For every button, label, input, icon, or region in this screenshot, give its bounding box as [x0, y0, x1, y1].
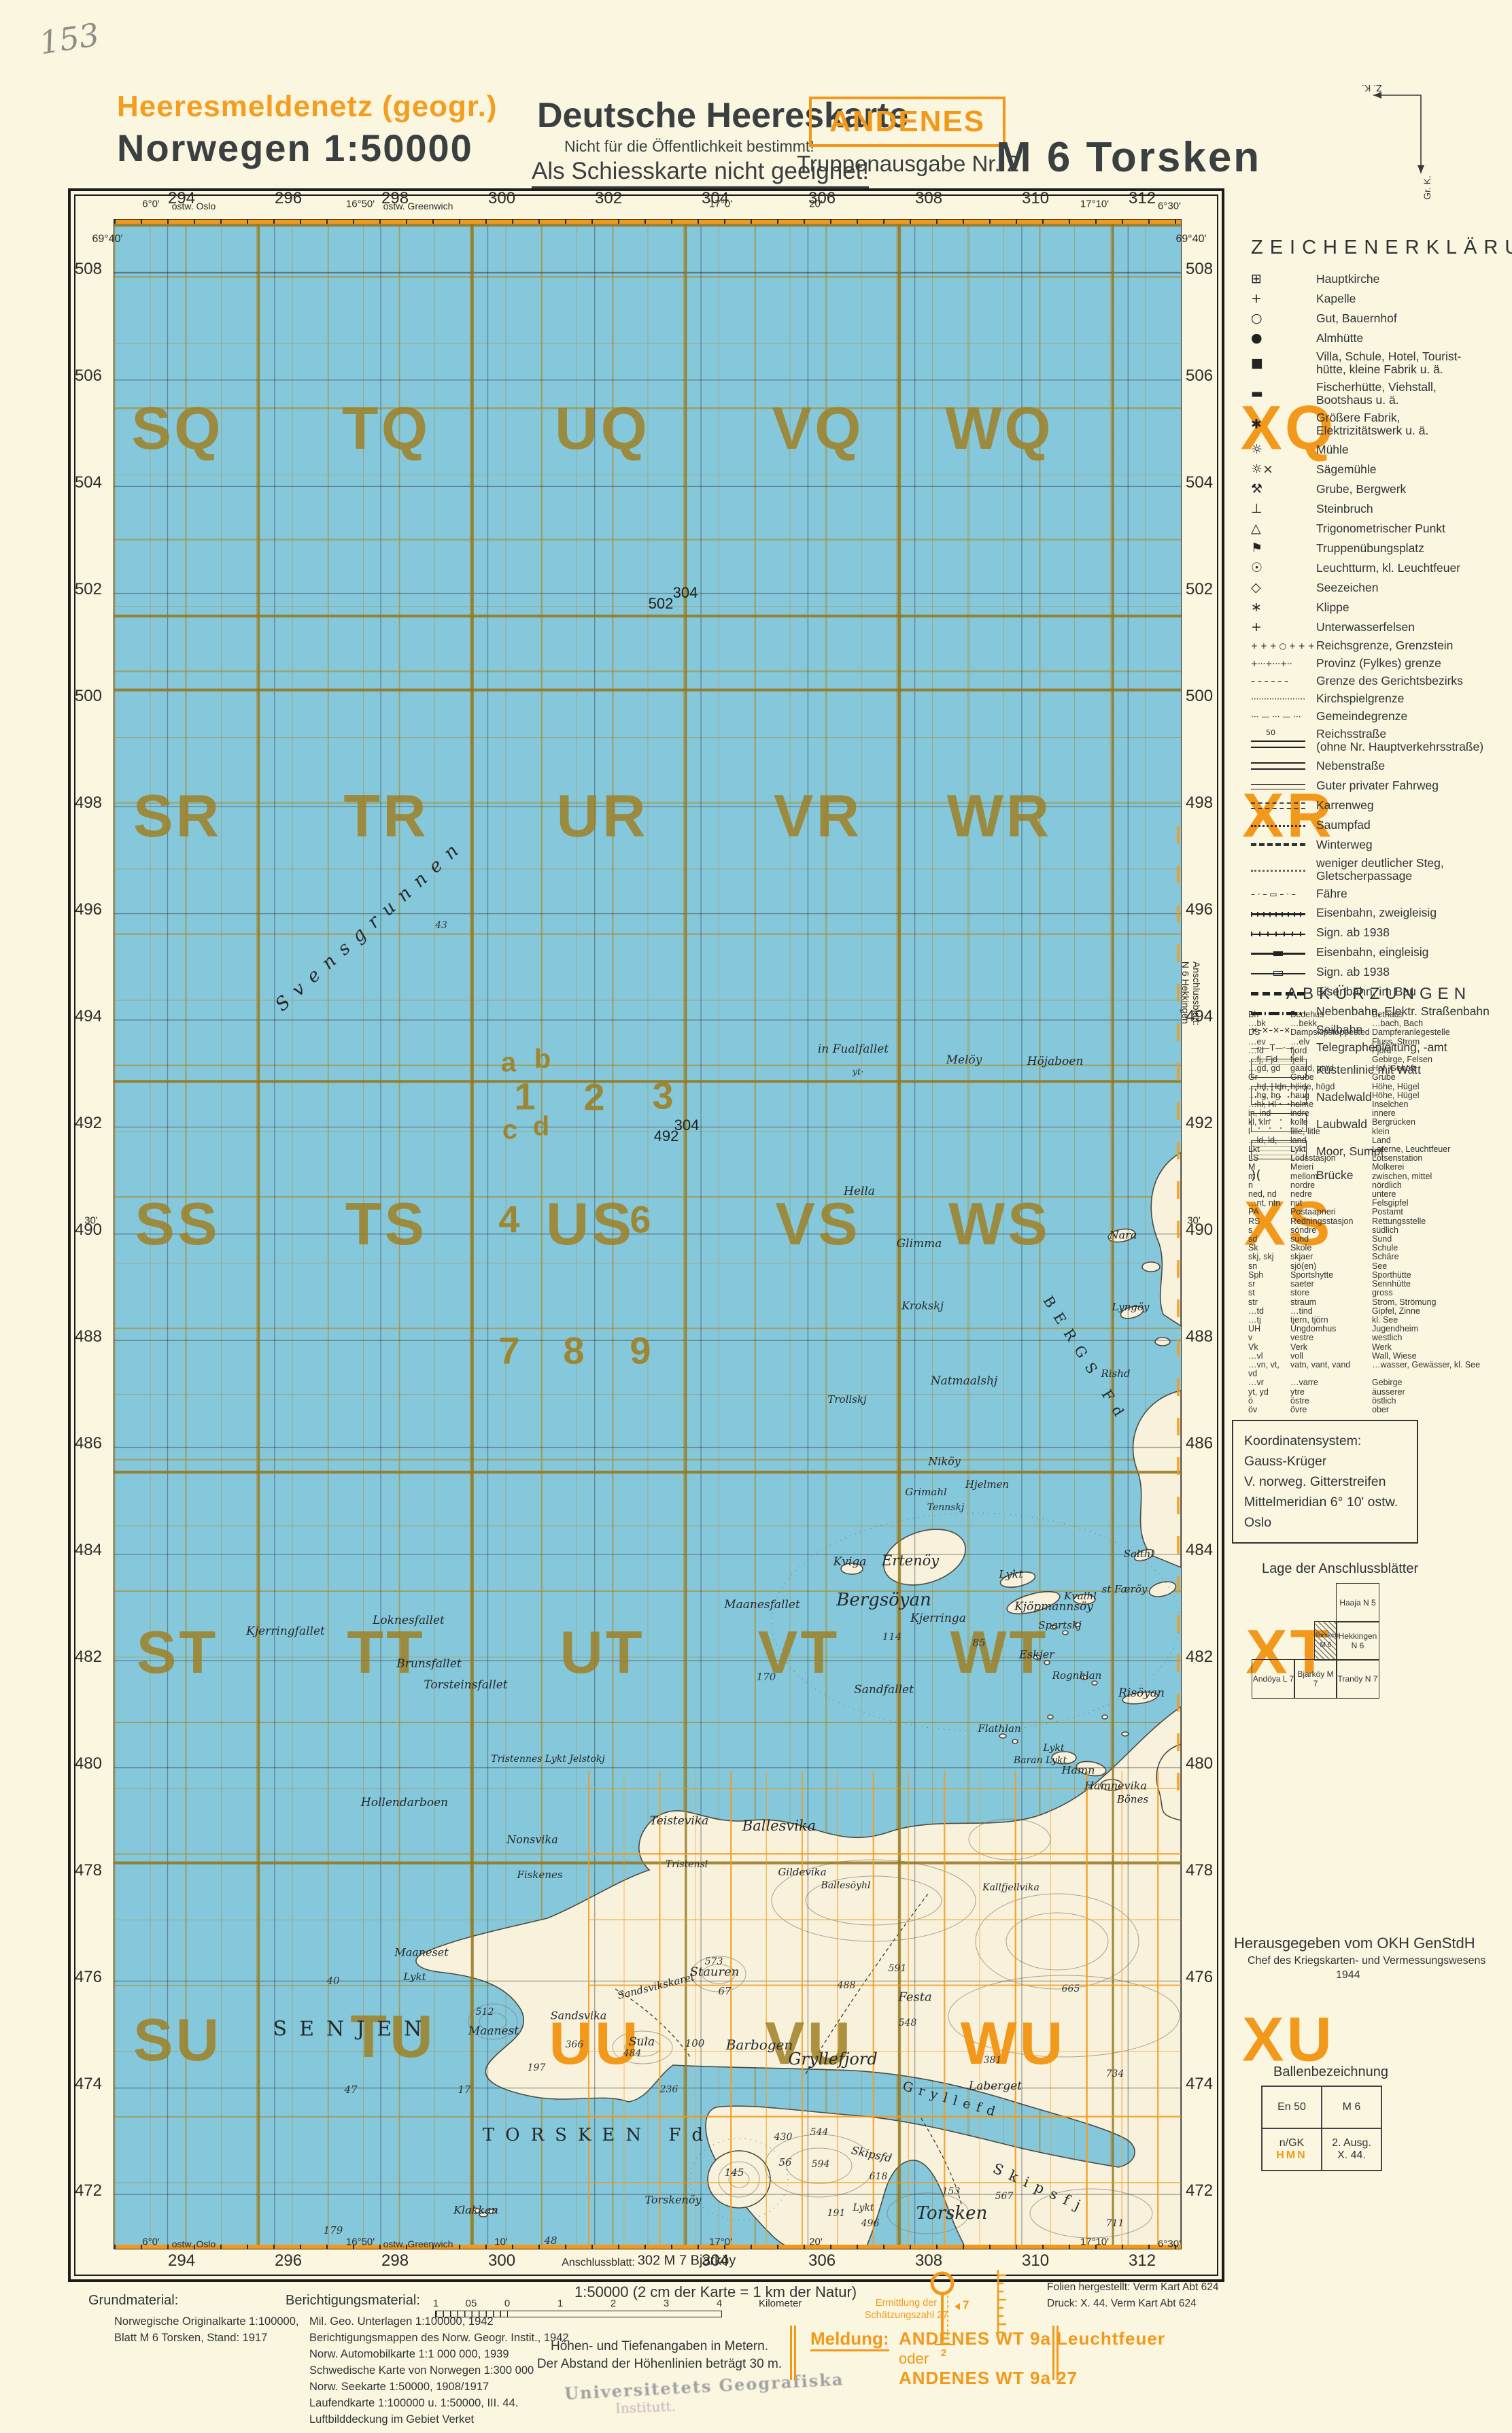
abbreviation-cell: vestre — [1290, 1333, 1372, 1342]
abbreviation-cell: Gebirge — [1372, 1378, 1510, 1387]
abbreviation-cell: Dampferanlegestelle — [1372, 1028, 1510, 1037]
abbreviation-cell: v — [1248, 1333, 1290, 1342]
abbreviation-cell: Höhe, Hügel — [1372, 1083, 1510, 1091]
abbreviation-cell: yt, yd — [1248, 1388, 1290, 1397]
legend-item-label: weniger deutlicher Steg,Gletscherpassage — [1316, 857, 1444, 883]
scale-bar: 10501234 Kilometer — [435, 2311, 722, 2317]
scale-bar-number: 0 — [504, 2298, 510, 2309]
legend-symbol-icon: △ — [1251, 521, 1316, 536]
abbreviation-cell: kl, kln — [1248, 1118, 1290, 1127]
abbreviation-cell: st — [1248, 1289, 1290, 1297]
abbreviation-cell: RS — [1248, 1217, 1290, 1226]
scale-bar-number: 3 — [664, 2298, 669, 2309]
north-arrow-icon — [1350, 82, 1458, 204]
adjoin-cell-hekkingen: Hekkingen N 6 — [1336, 1621, 1379, 1661]
legend-item-label: Reichsstraße(ohne Nr. Hauptverkehrsstraß… — [1316, 728, 1483, 753]
legend-item: +···+···+··Provinz (Fylkes) grenze — [1251, 657, 1509, 670]
publisher-line1: Herausgegeben vom OKH GenStdH — [1234, 1935, 1506, 1952]
abbreviation-cell: kolle — [1290, 1118, 1372, 1127]
legend-item-label: Winterweg — [1316, 838, 1373, 851]
legend-item: ○Gut, Bauernhof — [1251, 311, 1509, 326]
abbreviation-cell: sn — [1248, 1262, 1290, 1271]
legend-symbol-icon: ◇ — [1251, 580, 1316, 595]
abbreviation-cell: nedre — [1290, 1190, 1372, 1199]
legend-item: ▬Fischerhütte, Viehstall,Bootshaus u. ä. — [1251, 381, 1509, 407]
scale-bar-unit: Kilometer — [759, 2298, 802, 2309]
bale-table: En 50 M 6 n/GKHMN 2. Ausg.X. 44. — [1261, 2086, 1382, 2171]
abbreviation-row: …ev…elvFluss, Strom — [1248, 1038, 1510, 1047]
legend-item-label: Fischerhütte, Viehstall,Bootshaus u. ä. — [1316, 381, 1437, 407]
legend-item-label: Seezeichen — [1316, 581, 1378, 594]
library-stamp-line2: Institutt. — [615, 2398, 676, 2416]
legend-item-label: Almhütte — [1316, 332, 1363, 345]
scale-statement: 1:50000 (2 cm der Karte = 1 km der Natur… — [574, 2283, 857, 2301]
abbreviation-cell: skjaer — [1290, 1253, 1372, 1261]
folien-line: Folien hergestellt: Verm Kart Abt 624 — [1047, 2279, 1218, 2295]
legend-symbol-note: 50 — [1266, 730, 1316, 736]
map-frame: Anschlussblatt: N 6 Hekkingen — [68, 188, 1224, 2282]
scale-bar-number: 1 — [433, 2298, 439, 2309]
legend-item-label: Kapelle — [1316, 292, 1356, 305]
legend-symbol-icon: ☼ — [1251, 442, 1316, 457]
legend-line-symbol — [1251, 912, 1305, 917]
legend-symbol-icon — [1251, 925, 1316, 940]
bale-cell-en50: En 50 — [1262, 2086, 1322, 2128]
legend-symbol-icon: ☼× — [1251, 462, 1316, 477]
abbreviation-cell: voll — [1290, 1352, 1372, 1361]
abbreviation-cell: PA — [1248, 1208, 1290, 1216]
abbreviation-cell: Strom, Strömung — [1372, 1298, 1510, 1307]
legend-item: ⊞Hauptkirche — [1251, 271, 1509, 286]
schaetzungszahl-icon — [923, 2268, 1025, 2364]
legend-item-label: Trigonometrischer Punkt — [1316, 522, 1445, 535]
legend-item-label: Grube, Bergwerk — [1316, 483, 1406, 496]
legend-item: – · – ▭ – · –Fähre — [1251, 887, 1509, 900]
legend-symbol-icon: ▬ — [1251, 386, 1316, 401]
abbreviation-cell: …tind — [1290, 1307, 1372, 1316]
legend-item-label: Hauptkirche — [1316, 273, 1379, 286]
legend-line-symbol — [1251, 932, 1305, 936]
legend-item: ■Villa, Schule, Hotel, Tourist-hütte, kl… — [1251, 350, 1509, 376]
abbreviation-cell: Gipfel, Zinne — [1372, 1307, 1510, 1316]
abbreviation-cell: Gr — [1248, 1073, 1290, 1082]
abbreviation-cell: UH — [1248, 1325, 1290, 1333]
publisher-line2: Chef des Kriegskarten- und Vermessungswe… — [1248, 1955, 1506, 1967]
coord-line-1: Koordinatensystem: Gauss-Krüger — [1244, 1431, 1406, 1471]
berichtigung-line: Laufendkarte 1:100000 u. 1:50000, III. 4… — [309, 2395, 569, 2411]
abbreviation-row: VkVerkWerk — [1248, 1343, 1510, 1352]
abbreviation-row: …vn, vt, vdvatn, vant, vand…wasser, Gewä… — [1248, 1361, 1510, 1378]
abbreviation-cell: Postamt — [1372, 1208, 1510, 1216]
abbreviation-cell: zwischen, mittel — [1372, 1172, 1510, 1181]
abbreviation-cell: sjö(en) — [1290, 1262, 1372, 1271]
meldenetz-edge-dashes — [1177, 818, 1180, 1790]
andenes-stamp: ANDENES — [809, 97, 1006, 147]
abbreviation-cell: ober — [1372, 1406, 1510, 1414]
schaetzungszahl-diagram: 7 2 — [923, 2268, 1025, 2364]
abbreviation-cell: öv — [1248, 1406, 1290, 1414]
meldung-oder: oder — [899, 2350, 929, 2368]
abbreviation-cell: Werk — [1372, 1343, 1510, 1352]
coordinate-system-box: Koordinatensystem: Gauss-Krüger V. norwe… — [1232, 1420, 1418, 1544]
meldung-line1: ANDENES WT 9a Leuchtfeuer — [899, 2328, 1165, 2349]
map-sheet-page: { "page":{"pencil_note":"153"}, "header"… — [0, 0, 1512, 2433]
legend-symbol-icon: – · – ▭ – · – — [1251, 889, 1316, 899]
bale-hmn: HMN — [1263, 2149, 1320, 2162]
abbreviation-cell: …ev — [1248, 1038, 1290, 1047]
legend-item: ◇Seezeichen — [1251, 580, 1509, 595]
legend-item: ·····················Kirchspielgrenze — [1251, 692, 1509, 705]
legend-item-label: Sign. ab 1938 — [1316, 966, 1390, 979]
abbreviations-rows: BhBedehusBethaus…bk…bekk…bach, BachDSDam… — [1248, 1010, 1510, 1414]
legend-item-label: Klippe — [1316, 601, 1350, 614]
sheet-title: M 6 Torsken — [996, 133, 1261, 182]
legend-item: – – – – – –Grenze des Gerichtsbezirks — [1251, 675, 1509, 687]
legend-item-label: Unterwasserfelsen — [1316, 621, 1415, 634]
legend-symbol-icon — [1251, 798, 1316, 813]
legend-item: Eisenbahn, eingleisig — [1251, 945, 1509, 959]
legend-line-symbol — [1251, 825, 1305, 829]
abbreviation-row: RSRedningsstasjonRettungsstelle — [1248, 1217, 1510, 1226]
adjoining-sheets-title: Lage der Anschlussblätter — [1262, 1561, 1455, 1577]
legend-symbol-icon: ⚑ — [1251, 541, 1316, 556]
ermittlung-seven: 7 — [963, 2298, 969, 2312]
abbreviation-cell: Verk — [1290, 1343, 1372, 1352]
legend-item: +Unterwasserfelsen — [1251, 619, 1509, 634]
adjoin-cell-tranoy: Tranöy N 7 — [1336, 1659, 1379, 1699]
hoehen-line-2: Der Abstand der Höhenlinien beträgt 30 m… — [517, 2355, 802, 2373]
legend-item: Sign. ab 1938 — [1251, 925, 1509, 940]
abbreviation-cell: …varre — [1290, 1378, 1372, 1387]
abbreviation-cell: Rettungsstelle — [1372, 1217, 1510, 1226]
edge-adjoin-note: Anschlussblatt: N 6 Hekkingen — [1180, 962, 1202, 1025]
legend-item-label: Gemeindegrenze — [1316, 710, 1407, 723]
grundmaterial-lines: Norwegische Originalkarte 1:100000, Blat… — [114, 2313, 299, 2346]
legend-item-label: Nebenstraße — [1316, 760, 1385, 772]
abbreviation-row: skj, skjskjaerSchäre — [1248, 1253, 1510, 1261]
legend-symbol-icon: ● — [1251, 330, 1316, 345]
legend-line-symbol — [1251, 971, 1305, 976]
elevation-note: Höhen- und Tiefenangaben in Metern. Der … — [517, 2338, 802, 2373]
adjoining-sheets-panel: Lage der Anschlussblätter Haaja N 5 Tors… — [1251, 1561, 1455, 1577]
druck-line: Druck: X. 44. Verm Kart Abt 624 — [1047, 2296, 1197, 2311]
legend-symbol-icon: +···+···+·· — [1251, 659, 1316, 668]
abbreviation-row: …td…tindGipfel, Zinne — [1248, 1307, 1510, 1316]
abbreviation-row: …vlvollWall, Wiese — [1248, 1352, 1510, 1361]
legend-symbol-icon: ⊥ — [1251, 501, 1316, 516]
abbreviation-cell: Vk — [1248, 1343, 1290, 1352]
abbreviation-row: ststoregross — [1248, 1289, 1510, 1297]
legend-symbol-icon — [1251, 905, 1316, 920]
berichtigung-line: Luftbilddeckung im Gebiet Verket — [309, 2411, 569, 2428]
abbreviation-cell: See — [1372, 1262, 1510, 1271]
legend-item: Nebenstraße — [1251, 758, 1509, 773]
legend-item-label: Sägemühle — [1316, 463, 1377, 476]
pencil-annotation: 153 — [37, 16, 101, 61]
abbreviation-cell: Schäre — [1372, 1253, 1510, 1261]
abbreviation-cell: …hd, Hdn — [1248, 1083, 1290, 1091]
abbreviation-cell: str — [1248, 1298, 1290, 1307]
legend-symbol-icon: ····················· — [1251, 694, 1316, 704]
grundmaterial-title: Grundmaterial: — [88, 2293, 178, 2309]
adjoin-cell-torsken: Torsken M 6 — [1314, 1621, 1337, 1661]
bale-cell-ausgabe: 2. Ausg.X. 44. — [1322, 2128, 1381, 2171]
abbreviation-row: strstraumStrom, Strömung — [1248, 1298, 1510, 1307]
legend-item-label: Steinbruch — [1316, 503, 1373, 515]
berichtigung-line: Norw. Seekarte 1:50000, 1908/1917 — [309, 2379, 569, 2395]
legend-item-label: Reichsgrenze, Grenzstein — [1316, 639, 1453, 652]
legend-symbol-icon: 50 — [1251, 730, 1316, 751]
scale-bar-number: 2 — [611, 2298, 616, 2309]
abbreviation-row: PAPostaapneriPostamt — [1248, 1208, 1510, 1216]
abbreviation-row: …hd, Hdnhöide, högdHöhe, Hügel — [1248, 1083, 1510, 1091]
legend-line-symbol — [1251, 870, 1305, 874]
abbreviation-cell: store — [1290, 1289, 1372, 1297]
legend-symbol-icon: + — [1251, 291, 1316, 306]
legend-symbol-icon: – – – – – – — [1251, 677, 1316, 686]
abbreviation-cell: lille, litle — [1290, 1127, 1372, 1136]
legend-symbol-icon — [1251, 862, 1316, 877]
scale-bar-number: 05 — [466, 2298, 477, 2309]
abbreviation-row: vvestrewestlich — [1248, 1333, 1510, 1342]
legend-item: ☉Leuchtturm, kl. Leuchtfeuer — [1251, 560, 1509, 575]
library-stamp-line1: Universitetets Geografiska — [564, 2369, 844, 2403]
legend-symbol-icon: ■ — [1251, 356, 1316, 371]
legend-symbol-icon: ✱ — [1251, 417, 1316, 432]
legend-item: 50Reichsstraße(ohne Nr. Hauptverkehrsstr… — [1251, 728, 1509, 753]
restriction-note: Nicht für die Öffentlichkeit bestimmt! — [564, 137, 814, 156]
abbreviation-cell: skj, skj — [1248, 1253, 1290, 1261]
abbreviations-panel: ABKÜRZUNGEN BhBedehusBethaus…bk…bekk…bac… — [1248, 985, 1510, 1414]
region-scale: Norwegen 1:50000 — [117, 126, 473, 170]
abbreviation-cell: straum — [1290, 1298, 1372, 1307]
legend-line-symbol — [1251, 843, 1305, 849]
adjoin-cell-andoya: Andöya L 7 — [1252, 1659, 1295, 1699]
legend-item: ··· — ··· — ···Gemeindegrenze — [1251, 710, 1509, 723]
abbreviation-cell: Bergrücken — [1372, 1118, 1510, 1127]
abbreviation-cell: klein — [1372, 1127, 1510, 1136]
legend-item-label: Eisenbahn, zweigleisig — [1316, 906, 1437, 919]
north-arrow-diagram: Z. K. Gr. K. — [1350, 82, 1458, 204]
legend-item-label: Größere Fabrik,Elektrizitätswerk u. ä. — [1316, 411, 1428, 437]
abbreviation-cell: Meieri — [1290, 1163, 1372, 1172]
abbreviation-cell: m — [1248, 1172, 1290, 1181]
edition-label: Truppenausgabe Nr. 2 — [797, 151, 1019, 177]
legend-symbol-icon — [1251, 964, 1316, 979]
abbreviation-cell: südlich — [1372, 1226, 1510, 1235]
abbreviation-cell: …elv — [1290, 1038, 1372, 1047]
publisher-year: 1944 — [1336, 1969, 1506, 1981]
coord-line-2: V. norweg. Gitterstreifen — [1244, 1471, 1406, 1492]
legend-item-label: Saumpfad — [1316, 819, 1371, 832]
abbreviation-cell: övre — [1290, 1406, 1372, 1414]
legend-line-symbol — [1251, 951, 1305, 956]
meldenetz-tick-band-bottom — [114, 2245, 1181, 2249]
abbreviation-cell: l — [1248, 1127, 1290, 1136]
legend-item: Guter privater Fahrweg — [1251, 778, 1509, 793]
legend-item: Winterweg — [1251, 837, 1509, 852]
legend-symbol-icon — [1251, 758, 1316, 773]
legend-item: ∗Klippe — [1251, 600, 1509, 615]
legend-symbol-icon: ··· — ··· — ··· — [1251, 712, 1316, 721]
hoehen-line-1: Höhen- und Tiefenangaben in Metern. — [517, 2338, 802, 2355]
legend-item: Sign. ab 1938 — [1251, 964, 1509, 979]
legend-symbol-icon — [1251, 778, 1316, 793]
north-arrow-grk-label: Gr. K. — [1422, 175, 1432, 200]
abbreviation-row: DSDampskipstoppestedDampferanlegestelle — [1248, 1028, 1510, 1037]
meldung-bar-left — [790, 2326, 796, 2380]
abbreviation-row: yt, ydytreäusserer — [1248, 1388, 1510, 1397]
abbreviation-cell: Grube — [1372, 1073, 1510, 1082]
legend-title: ZEICHENERKLÄRUNG — [1251, 237, 1509, 259]
legend-item: Saumpfad — [1251, 817, 1509, 832]
adjoin-cell-bjarkoy: Bjarköy M 7 — [1294, 1659, 1337, 1699]
legend-line-symbol — [1251, 784, 1305, 789]
legend-item: ☼×Sägemühle — [1251, 462, 1509, 477]
grund-line-2: Blatt M 6 Torsken, Stand: 1917 — [114, 2330, 299, 2346]
abbreviation-row: övövreober — [1248, 1406, 1510, 1414]
scale-bar-subdivisions — [436, 2311, 508, 2317]
legend-item-label: Villa, Schule, Hotel, Tourist-hütte, kle… — [1316, 350, 1461, 376]
meldung-line2: ANDENES WT 9a 27 — [899, 2368, 1078, 2389]
legend-symbol-icon — [1251, 945, 1316, 959]
legend-item: ⊥Steinbruch — [1251, 501, 1509, 516]
abbreviation-cell: östre — [1290, 1397, 1372, 1406]
abbreviation-row: kl, klnkolleBergrücken — [1248, 1118, 1510, 1127]
abbreviation-row: llille, litleklein — [1248, 1127, 1510, 1136]
abbreviation-cell: höide, högd — [1290, 1083, 1372, 1091]
legend-item-label: Provinz (Fylkes) grenze — [1316, 657, 1441, 670]
legend-symbol-icon: ○ — [1251, 311, 1316, 326]
abbreviation-cell: Postaapneri — [1290, 1208, 1372, 1216]
bale-title: Ballenbezeichnung — [1273, 2064, 1388, 2080]
abbreviation-row: GrGrubeGrube — [1248, 1073, 1510, 1082]
legend-line-symbol — [1251, 762, 1305, 770]
legend-item-label: Eisenbahn, eingleisig — [1316, 946, 1428, 959]
abbreviation-cell: mellom — [1290, 1172, 1372, 1181]
legend-item: ●Almhütte — [1251, 330, 1509, 345]
legend-item-label: Leuchtturm, kl. Leuchtfeuer — [1316, 562, 1460, 575]
legend-item-label: Guter privater Fahrweg — [1316, 779, 1439, 792]
abbreviation-cell: äusserer — [1372, 1388, 1510, 1397]
legend-item: weniger deutlicher Steg,Gletscherpassage — [1251, 857, 1509, 883]
legend-item-label: Mühle — [1316, 443, 1349, 456]
legend-symbol-icon: ⚒ — [1251, 481, 1316, 496]
legend-symbol-icon: + — [1251, 619, 1316, 634]
abbreviation-cell: Fluss, Strom — [1372, 1038, 1510, 1047]
abbreviation-cell: Redningsstasjon — [1290, 1217, 1372, 1226]
abbreviation-cell: westlich — [1372, 1333, 1510, 1342]
legend-item-label: Truppenübungsplatz — [1316, 542, 1424, 555]
legend-item: ☼Mühle — [1251, 442, 1509, 457]
abbreviation-row: snsjö(en)See — [1248, 1262, 1510, 1271]
meldenetz-tick-band-top — [114, 220, 1181, 224]
adjoin-cell-haaja: Haaja N 5 — [1336, 1583, 1379, 1622]
legend-item: +Kapelle — [1251, 291, 1509, 306]
abbreviation-row: MMeieriMolkerei — [1248, 1163, 1510, 1172]
legend-symbol-icon — [1251, 837, 1316, 852]
legend-line-symbol — [1251, 802, 1305, 809]
abbreviation-cell: Wall, Wiese — [1372, 1352, 1510, 1361]
abbreviation-cell: Dampskipstoppested — [1290, 1028, 1372, 1037]
legend-symbol-icon: + + + ○ + + + — [1251, 641, 1316, 651]
abbreviation-cell: ytre — [1290, 1388, 1372, 1397]
legend-item: △Trigonometrischer Punkt — [1251, 521, 1509, 536]
bale-cell-ngk: n/GKHMN — [1262, 2128, 1322, 2171]
abbreviation-cell: …wasser, Gewässer, kl. See — [1372, 1361, 1510, 1378]
legend-item-label: Kirchspielgrenze — [1316, 692, 1404, 705]
legend-symbol-icon: ☉ — [1251, 560, 1316, 575]
grund-line-1: Norwegische Originalkarte 1:100000, — [114, 2313, 299, 2330]
series-label: Heeresmeldenetz (geogr.) — [117, 90, 498, 124]
abbreviation-cell: …vn, vt, vd — [1248, 1361, 1290, 1378]
scale-bar-number: 1 — [557, 2298, 563, 2309]
abbreviation-cell: Molkerei — [1372, 1163, 1510, 1172]
abbreviation-cell: östlich — [1372, 1397, 1510, 1406]
legend-symbol-icon — [1251, 817, 1316, 832]
map-canvas[interactable] — [114, 219, 1182, 2249]
legend-item-label: Grenze des Gerichtsbezirks — [1316, 675, 1463, 687]
legend-line-symbol — [1251, 741, 1305, 748]
legend-item: ⚒Grube, Bergwerk — [1251, 481, 1509, 496]
legend-item: + + + ○ + + +Reichsgrenze, Grenzstein — [1251, 639, 1509, 652]
bale-panel: Ballenbezeichnung En 50 M 6 n/GKHMN 2. A… — [1261, 2064, 1388, 2171]
abbreviation-cell: vatn, vant, vand — [1290, 1361, 1372, 1378]
abbreviation-row: mmellomzwischen, mittel — [1248, 1172, 1510, 1181]
abbreviation-row: ööstreöstlich — [1248, 1397, 1510, 1406]
abbreviation-row: …vr…varreGebirge — [1248, 1378, 1510, 1387]
legend-item-label: Fähre — [1316, 887, 1347, 900]
legend-symbol-icon: ⊞ — [1251, 271, 1316, 286]
legend-item-label: Sign. ab 1938 — [1316, 926, 1390, 939]
meldung-label: Meldung: — [810, 2328, 889, 2351]
abbreviation-cell: gross — [1372, 1289, 1510, 1297]
legend-item: Karrenweg — [1251, 798, 1509, 813]
abbreviation-cell: …vl — [1248, 1352, 1290, 1361]
abbreviation-cell: …vr — [1248, 1378, 1290, 1387]
abbreviation-cell: …td — [1248, 1307, 1290, 1316]
legend-item: Eisenbahn, zweigleisig — [1251, 905, 1509, 920]
berichtigung-title: Berichtigungsmaterial: — [286, 2293, 420, 2309]
legend-symbol-icon: ∗ — [1251, 600, 1316, 615]
coord-line-3: Mittelmeridian 6° 10' ostw. Oslo — [1244, 1492, 1406, 1533]
publisher-block: Herausgegeben vom OKH GenStdH Chef des K… — [1234, 1935, 1506, 1981]
bale-cell-m6: M 6 — [1322, 2086, 1381, 2128]
abbreviations-title: ABKÜRZUNGEN — [1286, 985, 1510, 1004]
grid-orange-overlay — [588, 1771, 1181, 2249]
scale-bar-number: 4 — [717, 2298, 722, 2309]
abbreviation-cell: DS — [1248, 1028, 1290, 1037]
legend-item: ⚑Truppenübungsplatz — [1251, 541, 1509, 556]
north-arrow-zk-label: Z. K. — [1362, 83, 1382, 94]
abbreviation-cell: M — [1248, 1163, 1290, 1172]
legend-item-label: Gut, Bauernhof — [1316, 312, 1397, 325]
legend-item: ✱Größere Fabrik,Elektrizitätswerk u. ä. — [1251, 411, 1509, 437]
abbreviation-cell: Grube — [1290, 1073, 1372, 1082]
legend-item-label: Karrenweg — [1316, 799, 1374, 812]
abbreviation-cell: ö — [1248, 1397, 1290, 1406]
